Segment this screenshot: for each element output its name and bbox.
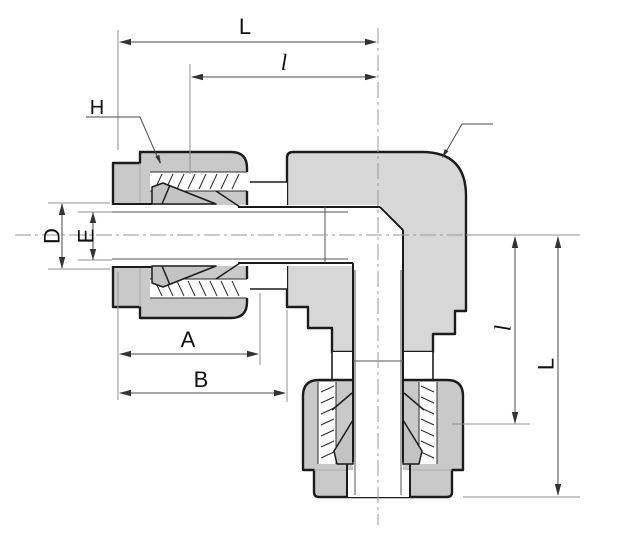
elbow-fitting-diagram: L l H D E A B l L (0, 0, 622, 541)
dim-label-A: A (181, 327, 196, 352)
fitting-technical-drawing: L l H D E A B l L (0, 0, 622, 541)
dim-label-L-right: L (534, 358, 559, 370)
bore-cavity (110, 205, 403, 470)
dim-label-B: B (194, 367, 209, 392)
part-label-H-nut: H (90, 97, 104, 119)
dim-label-L-top: L (239, 14, 251, 39)
dim-label-E: E (74, 229, 99, 244)
dim-label-D: D (40, 228, 65, 244)
dim-label-l-top: l (281, 50, 287, 75)
dim-label-l-right: l (491, 325, 516, 331)
leader-h (442, 124, 493, 158)
